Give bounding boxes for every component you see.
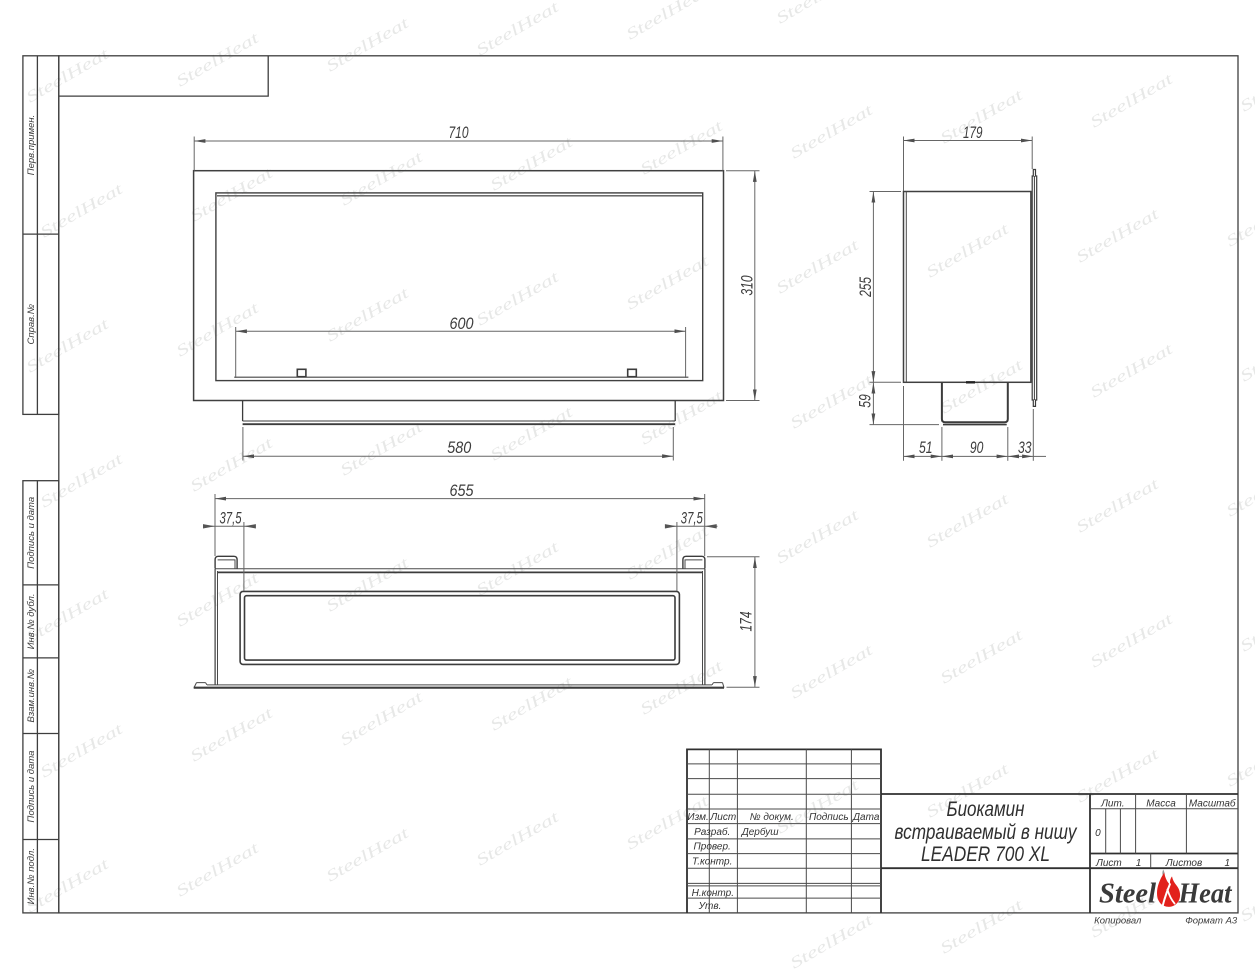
svg-text:0: 0 xyxy=(1095,828,1101,839)
svg-text:Инв.№ подл.: Инв.№ подл. xyxy=(26,848,37,904)
svg-text:Масштаб: Масштаб xyxy=(1189,797,1236,809)
svg-text:Масса: Масса xyxy=(1146,798,1176,809)
svg-text:Инв.№ дубл.: Инв.№ дубл. xyxy=(26,594,37,650)
svg-text:Дата: Дата xyxy=(852,812,880,823)
svg-text:51: 51 xyxy=(919,439,933,457)
svg-text:№ докум.: № докум. xyxy=(750,812,794,823)
svg-text:Подпись: Подпись xyxy=(809,812,849,823)
svg-text:Лист: Лист xyxy=(1095,858,1122,869)
svg-text:600: 600 xyxy=(450,315,475,333)
svg-text:Подпись и дата: Подпись и дата xyxy=(26,751,37,823)
svg-text:310: 310 xyxy=(739,275,757,296)
svg-text:37,5: 37,5 xyxy=(681,510,704,528)
svg-text:710: 710 xyxy=(449,124,470,142)
svg-text:1: 1 xyxy=(1225,858,1231,869)
svg-text:Н.контр.: Н.контр. xyxy=(692,888,734,899)
svg-text:Справ.№: Справ.№ xyxy=(26,304,37,345)
svg-text:Лист: Лист xyxy=(709,812,736,823)
svg-text:179: 179 xyxy=(963,124,983,142)
svg-text:Формат А3: Формат А3 xyxy=(1185,915,1238,926)
svg-text:Подпись и дата: Подпись и дата xyxy=(26,497,37,569)
svg-text:580: 580 xyxy=(447,439,472,457)
svg-text:Разраб.: Разраб. xyxy=(694,826,730,838)
svg-text:90: 90 xyxy=(970,439,984,457)
svg-text:Дербуш: Дербуш xyxy=(741,826,780,838)
svg-text:Листов: Листов xyxy=(1165,858,1202,869)
svg-text:Лит.: Лит. xyxy=(1100,798,1124,809)
svg-text:Взам.инв.№: Взам.инв.№ xyxy=(26,669,37,722)
svg-text:655: 655 xyxy=(450,482,475,500)
svg-text:Биокамин: Биокамин xyxy=(947,798,1025,821)
svg-text:Провер.: Провер. xyxy=(694,842,731,853)
svg-text:Перв.примен.: Перв.примен. xyxy=(26,115,37,176)
svg-text:33: 33 xyxy=(1018,439,1032,457)
svg-text:37,5: 37,5 xyxy=(220,510,243,528)
svg-text:Steel: Steel xyxy=(1099,879,1156,910)
svg-text:LEADER 700 XL: LEADER 700 XL xyxy=(921,843,1050,866)
svg-text:59: 59 xyxy=(857,394,875,408)
svg-text:Т.контр.: Т.контр. xyxy=(692,856,732,867)
svg-text:1: 1 xyxy=(1136,858,1142,869)
svg-text:Heat: Heat xyxy=(1178,879,1233,910)
svg-text:встраиваемый в нишу: встраиваемый в нишу xyxy=(895,821,1078,844)
svg-text:255: 255 xyxy=(857,276,875,297)
svg-text:Копировал: Копировал xyxy=(1094,915,1142,926)
svg-text:174: 174 xyxy=(738,612,756,632)
svg-text:Изм.: Изм. xyxy=(687,812,708,823)
svg-text:Утв.: Утв. xyxy=(698,901,722,912)
